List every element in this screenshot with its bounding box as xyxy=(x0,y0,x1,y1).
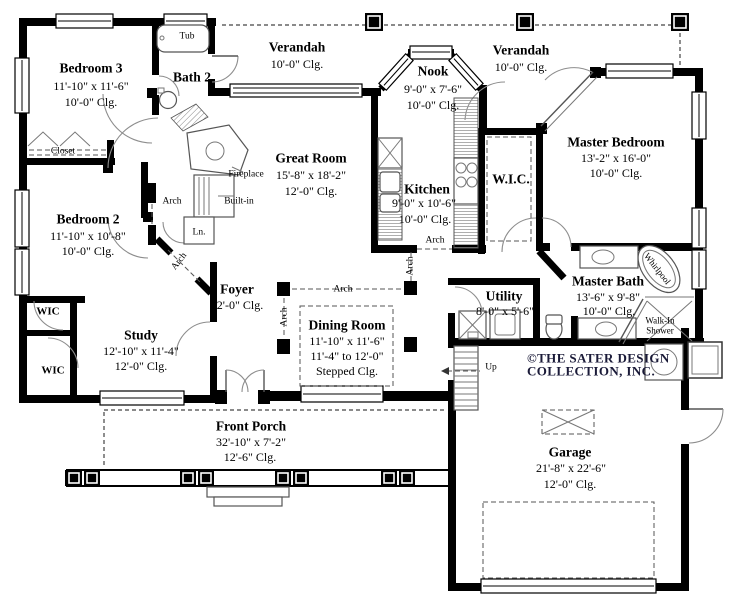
garage-attic-box xyxy=(542,410,594,434)
walk-in-shower-label-1: Walk-In xyxy=(645,317,674,326)
french-door xyxy=(541,72,597,131)
stairs xyxy=(454,346,478,410)
room-dims-nook: 9'-0" x 7'-6" xyxy=(404,83,462,95)
entry-steps xyxy=(207,487,289,506)
arch-label-5: Arch xyxy=(334,285,353,295)
room-ceiling-verandah-right: 10'-0" Clg. xyxy=(495,61,547,73)
room-label-study: Study xyxy=(124,328,158,342)
room-dims-front-porch: 32'-10" x 7'-2" xyxy=(216,436,286,448)
room-label-foyer: Foyer xyxy=(220,282,254,296)
arch-label-3: Arch xyxy=(426,236,445,246)
arch-label-6: Arch xyxy=(280,308,290,327)
walk-in-shower-label-2: Shower xyxy=(646,327,674,336)
copyright-line-2: COLLECTION, INC. xyxy=(527,365,655,378)
garage-door xyxy=(481,579,656,593)
room-ceiling-foyer: 12'-0" Clg. xyxy=(211,299,263,311)
tub-label: Tub xyxy=(180,32,195,42)
room-label-verandah-right: Verandah xyxy=(493,43,550,57)
wic-closet-rod xyxy=(487,137,531,241)
room-ceiling-master-bedroom: 10'-0" Clg. xyxy=(590,167,642,179)
room-label-dining-room: Dining Room xyxy=(309,318,386,332)
floor-plan: Bedroom 3 11'-10" x 11'-6" 10'-0" Clg. T… xyxy=(0,0,733,607)
room-label-wic-upper: WIC xyxy=(36,307,59,318)
room-ceiling-study: 12'-0" Clg. xyxy=(115,360,167,372)
room-dims-great-room: 15'-8" x 18'-2" xyxy=(276,169,346,181)
porch-columns xyxy=(66,470,415,486)
room-ceiling-nook: 10'-0" Clg. xyxy=(407,99,459,111)
arch-label-4: Arch xyxy=(406,257,416,276)
room-label-master-bath: Master Bath xyxy=(572,274,644,288)
room-dims-master-bedroom: 13'-2" x 16'-0" xyxy=(581,152,651,164)
up-label: Up xyxy=(485,363,497,373)
room-label-wic-master: W.I.C. xyxy=(492,172,529,186)
fireplace-label: Fireplace xyxy=(228,170,263,180)
room-dims-kitchen: 9'-0" x 10'-6" xyxy=(392,197,456,209)
room-ceiling-dining-room: Stepped Clg. xyxy=(316,365,378,377)
room-dims-study: 12'-10" x 11'-4" xyxy=(103,345,179,357)
bath2-sink xyxy=(158,88,177,109)
room-label-utility: Utility xyxy=(486,289,523,303)
room-dims-dining-room: 11'-10" x 11'-6" xyxy=(309,335,384,347)
arch-label-1: Arch xyxy=(163,197,182,207)
room-label-verandah-left: Verandah xyxy=(269,40,326,54)
room-label-nook: Nook xyxy=(418,64,449,78)
built-in-label: Built-in xyxy=(224,197,254,207)
room-label-wic-lower: WIC xyxy=(41,366,64,377)
garage-door-clearance xyxy=(483,502,654,578)
room-dims-bedroom2: 11'-10" x 10'-8" xyxy=(50,230,126,242)
room-label-bath2: Bath 2 xyxy=(173,70,211,84)
room-dims-garage: 21'-8" x 22'-6" xyxy=(536,462,606,474)
linen-label: Ln. xyxy=(193,228,206,238)
exterior-pad xyxy=(688,342,722,378)
room-dims-bedroom3: 11'-10" x 11'-6" xyxy=(53,80,128,92)
room-label-front-porch: Front Porch xyxy=(216,419,286,433)
room-dims-utility: 8'-0" x 5'-6" xyxy=(476,305,534,317)
room-label-great-room: Great Room xyxy=(275,151,346,165)
room-ceiling-kitchen: 10'-0" Clg. xyxy=(399,213,451,225)
room-dims-master-bath: 13'-6" x 9'-8" xyxy=(576,291,640,303)
room-ceiling-verandah-left: 10'-0" Clg. xyxy=(271,58,323,70)
closet-label: Closet xyxy=(51,147,75,157)
room-ceiling-bedroom3: 10'-0" Clg. xyxy=(65,96,117,108)
room-label-bedroom2: Bedroom 2 xyxy=(56,212,119,226)
verandah-columns xyxy=(365,13,689,31)
room-dims2-dining-room: 11'-4" to 12'-0" xyxy=(310,350,383,362)
room-ceiling-front-porch: 12'-6" Clg. xyxy=(224,451,276,463)
master-vanity-top xyxy=(580,246,638,268)
room-ceiling-garage: 12'-0" Clg. xyxy=(544,478,596,490)
room-ceiling-great-room: 12'-0" Clg. xyxy=(285,185,337,197)
room-label-master-bedroom: Master Bedroom xyxy=(567,135,664,149)
toilet xyxy=(546,315,562,339)
room-label-kitchen: Kitchen xyxy=(404,182,450,196)
room-ceiling-bedroom2: 10'-0" Clg. xyxy=(62,245,114,257)
room-label-garage: Garage xyxy=(549,445,592,459)
room-label-bedroom3: Bedroom 3 xyxy=(59,61,122,75)
fireplace xyxy=(171,104,248,175)
room-ceiling-master-bath: 10'-0" Clg. xyxy=(583,305,635,317)
